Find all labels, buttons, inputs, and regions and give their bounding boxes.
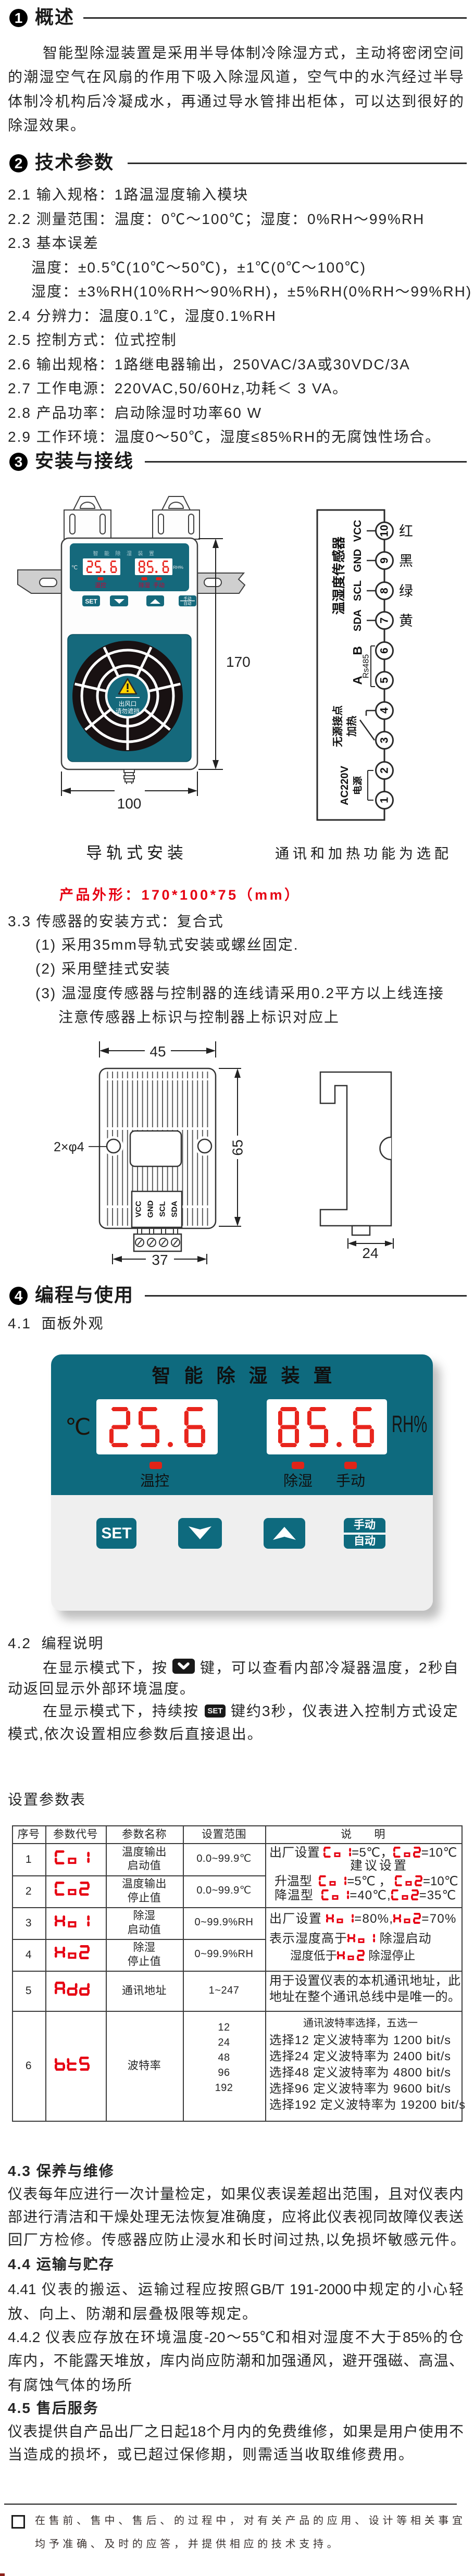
svg-text:2: 2 [379,767,391,774]
svg-text:7: 7 [379,617,391,624]
svg-text:9: 9 [379,557,391,564]
svg-text:SET: SET [85,598,97,605]
svg-text:Rs485: Rs485 [362,654,371,678]
svg-text:通讯和加热功能为选配: 通讯和加热功能为选配 [275,846,452,862]
svg-text:3: 3 [379,737,391,743]
svg-text:导轨式安装: 导轨式安装 [86,844,188,862]
svg-text:红: 红 [399,524,413,539]
svg-text:温湿度传感器: 温湿度传感器 [331,536,346,615]
svg-text:45: 45 [149,1043,166,1060]
svg-text:黑: 黑 [399,553,413,569]
svg-text:智能除湿装置: 智能除湿装置 [93,550,160,557]
svg-text:37: 37 [152,1252,168,1268]
svg-text:绿: 绿 [399,583,413,599]
svg-text:1: 1 [379,797,391,803]
svg-text:VCC: VCC [352,520,364,542]
svg-text:出风口: 出风口 [119,700,137,707]
svg-text:VCC: VCC [134,1201,143,1217]
svg-text:100: 100 [117,795,142,812]
svg-text:24: 24 [362,1245,378,1261]
svg-text:黄: 黄 [399,613,413,629]
svg-text:65: 65 [230,1139,246,1155]
svg-text:加热: 加热 [346,716,358,737]
svg-text:GND: GND [146,1200,155,1218]
svg-text:4: 4 [379,707,391,714]
svg-text:RH%: RH% [173,565,183,570]
svg-text:请勿遮挡: 请勿遮挡 [116,707,140,715]
svg-text:6: 6 [379,648,391,654]
svg-text:℃: ℃ [71,565,78,571]
svg-text:SCL: SCL [158,1201,167,1217]
svg-text:自动: 自动 [184,601,192,606]
svg-text:5: 5 [379,677,391,683]
svg-text:SDA: SDA [170,1201,179,1217]
svg-text:GND: GND [352,549,364,572]
svg-text:10: 10 [379,525,391,537]
svg-text:2×φ4: 2×φ4 [54,1140,84,1154]
svg-text:SCL: SCL [352,580,364,601]
svg-text:SDA: SDA [352,609,364,631]
svg-text:170: 170 [226,654,251,670]
svg-text:B: B [351,646,365,655]
svg-text:除湿: 除湿 [139,581,150,589]
svg-text:手动: 手动 [184,596,192,601]
svg-text:手动: 手动 [153,581,165,589]
svg-text:温控: 温控 [95,581,106,589]
svg-text:8: 8 [379,588,391,594]
svg-text:无源接点: 无源接点 [332,705,344,747]
svg-text:AC220V: AC220V [339,766,351,805]
svg-text:电源: 电源 [352,776,363,795]
